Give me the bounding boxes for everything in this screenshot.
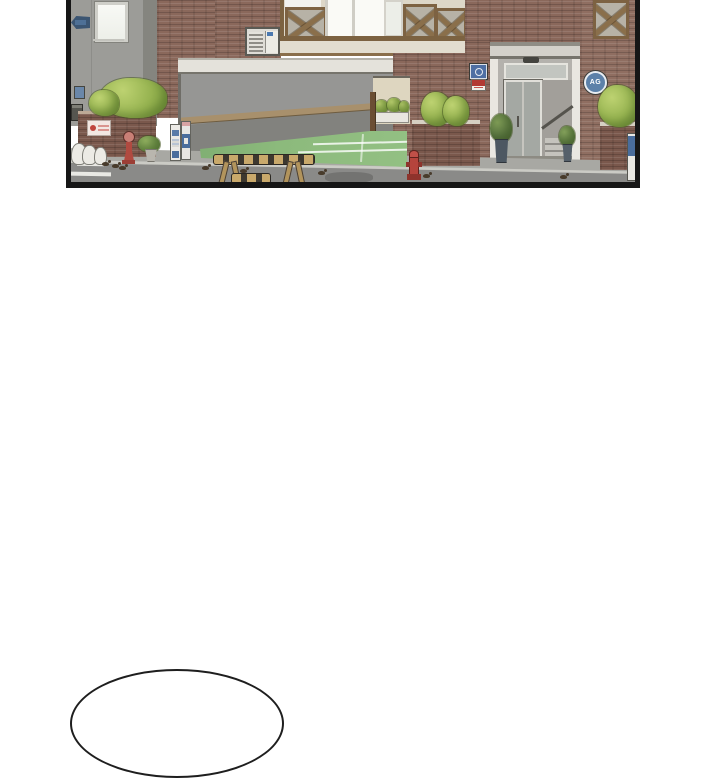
- door-stile: [522, 82, 524, 157]
- ac-louver: [249, 32, 263, 52]
- tudor-beam-vertical: [280, 0, 284, 41]
- entrance-plant-left-pot: [494, 139, 509, 163]
- bird-8: [560, 175, 567, 179]
- turf-line-1: [313, 141, 407, 145]
- tudor-window-bright: [325, 0, 387, 36]
- tudor-cream-band: [280, 41, 465, 53]
- fire-hydrant-base: [407, 174, 421, 180]
- notice-red-circle: [90, 125, 96, 131]
- tudor-window-small: [285, 0, 321, 7]
- parking-sign-blue: [470, 64, 487, 79]
- vending-pink-top: [182, 122, 190, 126]
- bird-4: [202, 166, 209, 170]
- notice-sign-red-band: [472, 80, 485, 86]
- bird-1: [102, 162, 109, 166]
- fire-hydrant-cap-right: [418, 162, 422, 167]
- vending-machine-pink: [181, 121, 191, 160]
- notice-sign-red: [471, 79, 486, 91]
- tudor-window-dim: [384, 0, 403, 37]
- vending-white-display: [172, 130, 179, 136]
- street-shadow-patch: [325, 172, 373, 182]
- wall-plate-blue: [74, 86, 85, 99]
- tudor-facade: [280, 0, 465, 56]
- entrance-lintel: [490, 46, 580, 56]
- bird-3: [119, 166, 126, 170]
- vending-right-blue-panel: [628, 136, 635, 156]
- notice-pink-line-1: [98, 125, 109, 127]
- speech-bubble: [70, 669, 284, 778]
- bird-7: [423, 174, 430, 178]
- door-handle: [517, 116, 519, 127]
- barrier-bar-low: [231, 173, 271, 182]
- comic-panel: AG: [66, 0, 640, 188]
- red-bollard-neck: [126, 142, 132, 152]
- panel-artwork: AG: [71, 0, 635, 182]
- turf-line-2: [298, 149, 407, 154]
- vending-white-base: [172, 151, 179, 158]
- window-sill: [93, 39, 124, 41]
- entrance-transom: [504, 63, 568, 80]
- ac-label: [267, 32, 273, 36]
- left-building-window: [95, 2, 128, 42]
- vending-pink-door: [184, 138, 188, 144]
- planter-center: [412, 120, 480, 166]
- turf-line-vertical: [360, 134, 364, 162]
- notice-sign-text-line: [474, 87, 483, 88]
- planter-center-bush-2: [443, 96, 469, 126]
- entrance-plant-right-leaves: [559, 126, 575, 146]
- bird-6: [318, 171, 325, 175]
- planter-left-bush-2: [89, 90, 119, 116]
- bird-2: [112, 164, 119, 168]
- planter-notice-sign: [87, 120, 111, 136]
- vending-machine-right: [627, 133, 635, 181]
- room-planter-box: [374, 112, 409, 123]
- tudor-xbrace-right: [593, 0, 629, 39]
- parking-sign-glyph: [475, 68, 483, 76]
- red-bollard-base: [122, 160, 135, 164]
- interior-room: [373, 76, 410, 124]
- tudor-window-mullion: [352, 0, 355, 36]
- vending-machine-white: [170, 124, 181, 161]
- entrance-badge-label: AG: [590, 79, 602, 86]
- entrance-plant-left-leaves: [490, 114, 512, 142]
- lane-marking-2: [71, 172, 111, 176]
- fire-hydrant-cap-left: [406, 162, 410, 167]
- bird-5: [240, 169, 247, 173]
- brick-wall-upper-right: [465, 0, 580, 44]
- planter-right-bush: [598, 85, 635, 127]
- vending-white-buttons: [172, 139, 179, 147]
- notice-pink-line-2: [98, 129, 109, 131]
- ac-unit: [245, 27, 280, 56]
